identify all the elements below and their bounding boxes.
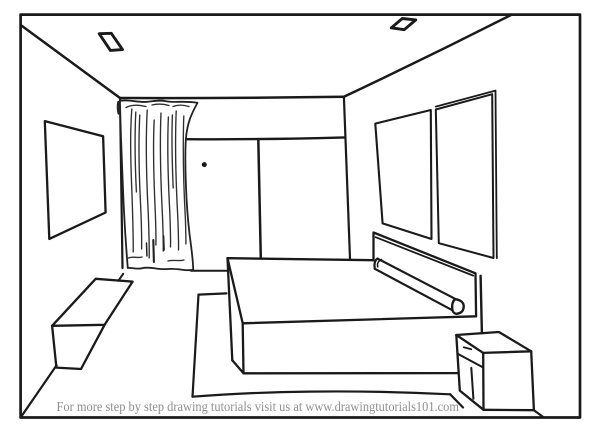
svg-text:For more step by step drawing: For more step by step drawing tutorials … bbox=[57, 400, 460, 415]
